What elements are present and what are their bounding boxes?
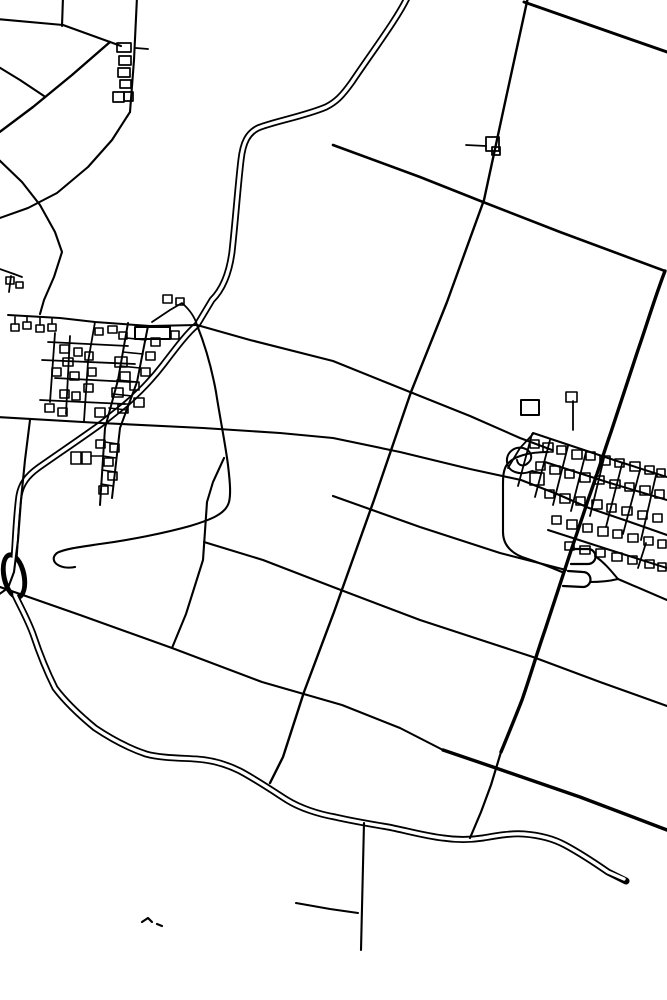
right-town-buildings — [552, 516, 561, 524]
right-town-buildings — [613, 530, 622, 538]
left-town-street-a — [84, 322, 95, 421]
right-town-buildings — [628, 534, 638, 542]
right-town-buildings — [598, 527, 608, 536]
right-town-buildings — [566, 392, 577, 402]
road-diagonal-1b — [0, 66, 44, 96]
interchange-merge-lower — [590, 579, 618, 582]
road-h1-topright — [524, 2, 667, 52]
left-town-buildings — [36, 325, 44, 332]
hamlet-buildings — [118, 68, 130, 77]
left-town-buildings — [95, 408, 105, 417]
right-town-buildings — [572, 450, 582, 459]
left-town-buildings — [82, 452, 91, 464]
road-diagonal-1 — [0, 42, 110, 134]
left-town-buildings — [108, 326, 117, 333]
road-hamlet-stub — [136, 48, 148, 49]
left-town-buildings — [95, 328, 103, 335]
road-vb — [172, 458, 224, 648]
left-town-buildings — [60, 345, 69, 353]
farm-driveway — [466, 145, 486, 146]
left-town-ladder-rungs — [123, 352, 143, 354]
left-town-buildings — [11, 324, 19, 331]
road-h2 — [333, 145, 665, 271]
road-h7a — [0, 586, 443, 750]
left-town-buildings — [104, 458, 113, 466]
hamlet-buildings — [113, 92, 124, 102]
left-town-buildings — [45, 404, 54, 412]
map-viewport — [0, 0, 667, 1000]
road-topleft-vertical-a — [62, 0, 63, 26]
interchange-slot-lower — [563, 571, 591, 587]
road-va-long-vertical — [270, 0, 528, 783]
road-h7a-thick — [443, 750, 667, 830]
left-town-buildings — [71, 452, 81, 464]
interchange-slot-upper — [571, 549, 596, 564]
road-diagonal-2 — [0, 112, 130, 219]
right-town-buildings — [567, 520, 577, 529]
right-town-buildings — [658, 540, 666, 548]
road-topleft-shallow — [0, 19, 121, 46]
left-town-buildings — [146, 352, 155, 360]
left-town-buildings — [52, 368, 61, 376]
road-left-edge-l-piece — [14, 274, 22, 277]
right-town-buildings — [583, 524, 592, 532]
right-town-street-1 — [533, 433, 667, 477]
left-town-buildings — [16, 282, 23, 288]
map-svg — [0, 0, 667, 1000]
left-town-buildings — [74, 348, 82, 356]
right-town-buildings — [596, 549, 605, 557]
left-town-buildings — [163, 295, 172, 303]
left-town-buildings — [48, 324, 56, 331]
hamlet-buildings — [119, 56, 131, 65]
road-h6 — [333, 496, 566, 570]
road-bottom-vertical — [361, 823, 364, 950]
interchange-merge-upper — [595, 556, 618, 579]
road-left-edge-l-piece — [0, 268, 14, 274]
interchange-exit-road — [618, 579, 667, 600]
map-fragment-squiggle — [142, 918, 162, 926]
road-bottom-diagonal — [296, 903, 358, 913]
left-town-big-building — [521, 400, 539, 415]
left-town-ne-arm — [152, 303, 197, 325]
left-town-buildings — [141, 368, 150, 376]
road-h5-main-street — [0, 417, 667, 535]
right-town-buildings — [557, 446, 566, 454]
right-town-buildings — [653, 514, 662, 522]
left-town-buildings — [72, 392, 80, 400]
left-town-buildings — [88, 368, 96, 376]
hamlet-buildings — [120, 80, 131, 88]
road-h7b — [204, 542, 667, 706]
left-town-buildings — [23, 322, 31, 329]
left-town-buildings — [171, 331, 179, 339]
